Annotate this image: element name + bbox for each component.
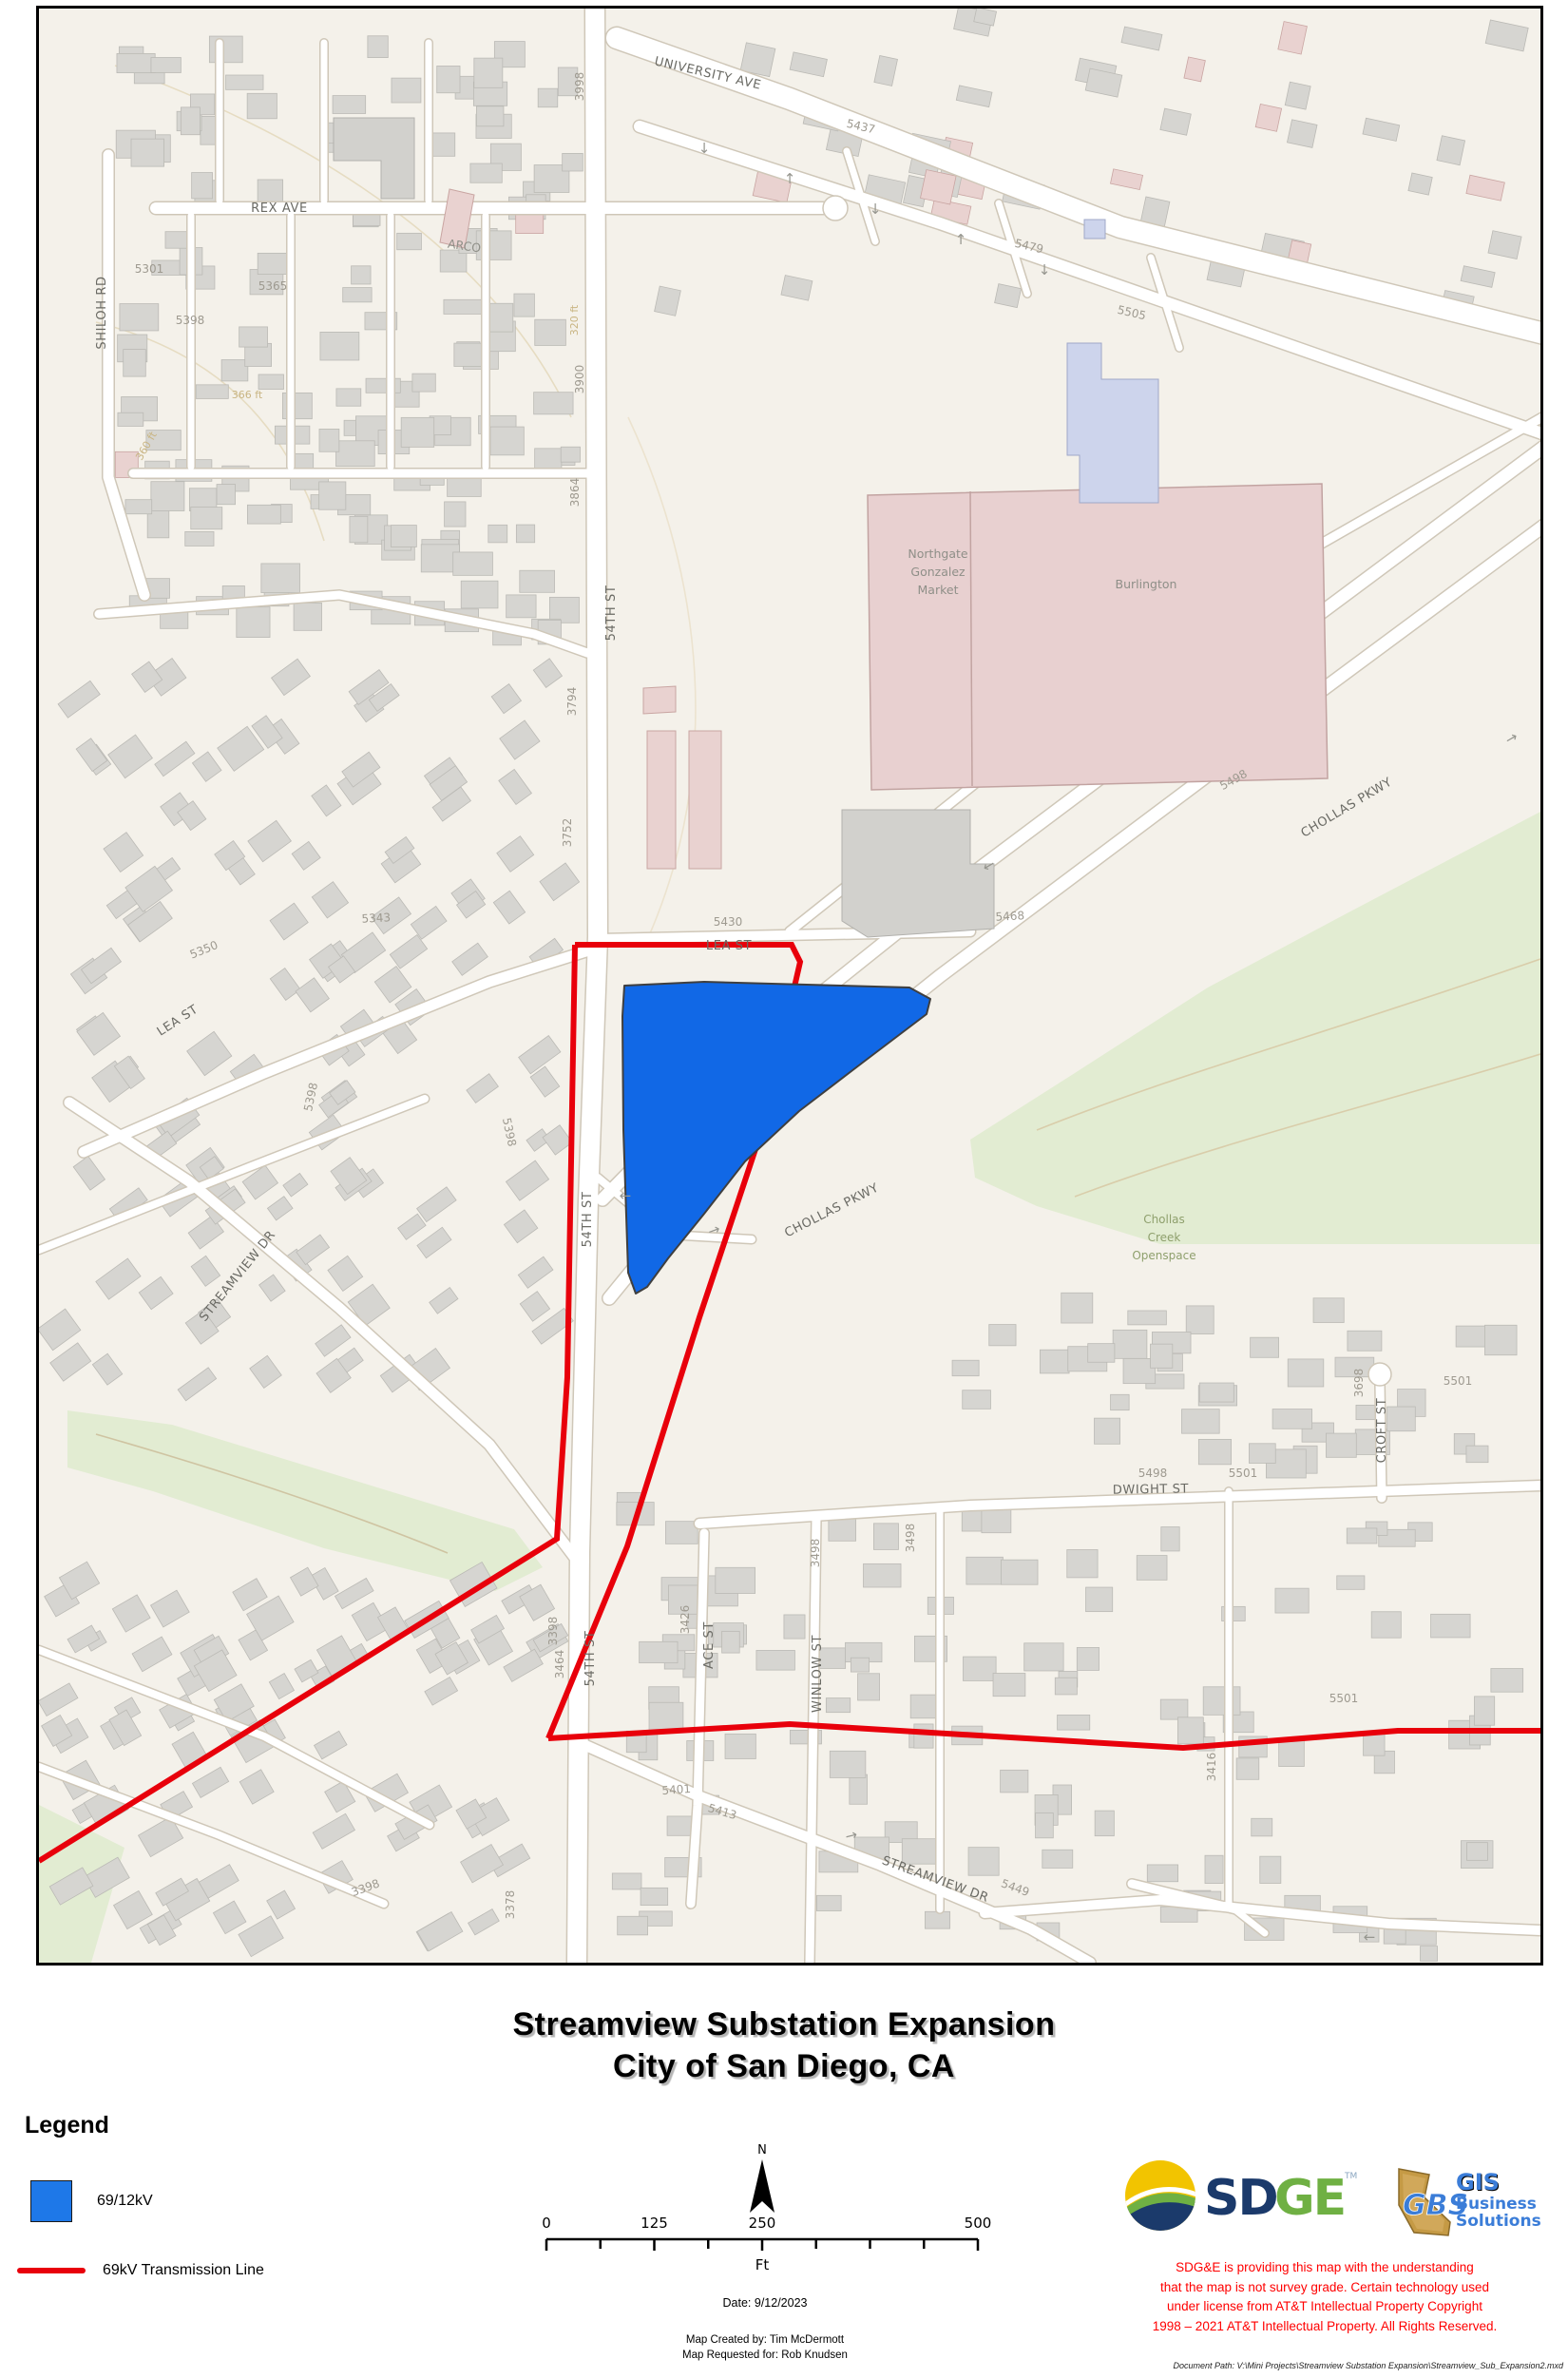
title-line-2: City of San Diego, CA xyxy=(0,2045,1568,2087)
house-footprint xyxy=(437,66,460,92)
map-label: 3698 xyxy=(1352,1369,1366,1398)
northgate-burlington-building xyxy=(868,484,1328,790)
house-footprint xyxy=(925,1911,949,1928)
house-footprint xyxy=(319,482,346,509)
disclaimer-text: SDG&E is providing this map with the und… xyxy=(1080,2258,1568,2336)
house-footprint xyxy=(1236,1758,1259,1779)
house-footprint xyxy=(1067,1549,1098,1577)
house-footprint xyxy=(1371,1612,1401,1638)
map-label: ↓ xyxy=(870,201,882,218)
house-footprint xyxy=(851,1658,869,1672)
house-footprint xyxy=(1420,1947,1437,1962)
house-footprint xyxy=(320,332,359,360)
house-footprint xyxy=(1147,1865,1177,1882)
map-label: 3900 xyxy=(573,365,586,394)
house-footprint xyxy=(1111,1394,1130,1410)
north-label: N xyxy=(757,2143,767,2157)
pink-building xyxy=(647,731,676,869)
house-footprint xyxy=(1251,1337,1279,1357)
house-footprint xyxy=(392,78,421,103)
disclaimer-line-4: 1998 – 2021 AT&T Intellectual Property. … xyxy=(1080,2317,1568,2337)
cul-de-sac xyxy=(823,196,848,221)
credit-created: Map Created by: Tim McDermott xyxy=(682,2332,848,2348)
house-footprint xyxy=(1161,1527,1179,1551)
commercial-building xyxy=(1255,104,1281,131)
map-label: 5430 xyxy=(714,915,743,929)
map-credits: Map Created by: Tim McDermott Map Reques… xyxy=(682,2332,848,2363)
house-footprint xyxy=(1040,1350,1069,1373)
gbs-line-business: Business xyxy=(1456,2195,1537,2214)
lavender-building xyxy=(1084,220,1105,239)
gbs-line-solutions: Solutions xyxy=(1456,2212,1541,2231)
substation-swatch xyxy=(30,2180,72,2222)
house-footprint xyxy=(401,417,434,447)
north-arrow: N xyxy=(741,2140,783,2220)
sdge-text-sd: SD xyxy=(1204,2170,1277,2227)
map-label: 3416 xyxy=(1205,1753,1218,1782)
map-label: Openspace xyxy=(1132,1249,1195,1262)
map-label: 5365 xyxy=(258,279,288,293)
map-label: 3998 xyxy=(573,72,586,102)
scale-tick-125: 125 xyxy=(641,2215,668,2232)
house-footprint xyxy=(1252,1818,1272,1836)
house-footprint xyxy=(963,1657,996,1680)
map-label: ACE ST xyxy=(702,1621,717,1669)
house-footprint xyxy=(476,106,504,126)
house-footprint xyxy=(1095,1811,1114,1836)
scale-bar: 0 125 250 500 Ft xyxy=(527,2215,1003,2275)
house-footprint xyxy=(966,1557,1004,1584)
map-label: Chollas xyxy=(1143,1213,1185,1226)
house-footprint xyxy=(1348,1331,1382,1351)
house-footprint xyxy=(1467,1843,1488,1861)
house-footprint xyxy=(520,570,555,592)
scale-bar-line xyxy=(546,2239,978,2251)
map-label: 5301 xyxy=(135,262,164,276)
house-footprint xyxy=(124,350,146,377)
map-label: Market xyxy=(918,583,959,597)
gbs-line-gis: GIS xyxy=(1456,2169,1500,2196)
legend-item-substation: 69/12kV xyxy=(30,2180,153,2222)
legend-label-substation: 69/12kV xyxy=(97,2193,153,2209)
house-footprint xyxy=(873,1524,898,1550)
house-footprint xyxy=(725,1734,755,1758)
house-footprint xyxy=(989,1325,1016,1346)
map-label: ← xyxy=(1364,1928,1376,1946)
house-footprint xyxy=(1260,1856,1281,1883)
house-footprint xyxy=(618,1916,648,1935)
pink-building xyxy=(689,731,721,869)
map-title: Streamview Substation Expansion City of … xyxy=(0,2004,1568,2087)
map-label: 3464 xyxy=(553,1650,566,1679)
house-footprint xyxy=(185,531,214,546)
house-footprint xyxy=(352,266,371,284)
house-footprint xyxy=(1001,1770,1028,1793)
house-footprint xyxy=(1186,1306,1214,1334)
house-footprint xyxy=(641,1888,668,1905)
map-label: 54TH ST xyxy=(604,585,619,642)
map-label: Gonzalez xyxy=(910,565,966,579)
house-footprint xyxy=(117,53,155,72)
house-footprint xyxy=(1249,1444,1275,1464)
scale-tick-250: 250 xyxy=(749,2215,776,2232)
house-footprint xyxy=(910,1695,936,1718)
house-footprint xyxy=(1288,1359,1324,1387)
map-label: Burlington xyxy=(1116,577,1177,591)
house-footprint xyxy=(1042,1850,1073,1868)
house-footprint xyxy=(1088,1344,1115,1363)
disclaimer-line-3: under license from AT&T Intellectual Pro… xyxy=(1080,2297,1568,2317)
map-label: REX AVE xyxy=(251,201,308,216)
house-footprint xyxy=(968,1848,999,1876)
house-footprint xyxy=(343,288,372,302)
house-footprint xyxy=(247,505,280,524)
house-footprint xyxy=(1177,1717,1203,1744)
house-footprint xyxy=(336,389,361,406)
cul-de-sac xyxy=(1368,1363,1391,1386)
transmission-swatch xyxy=(17,2268,86,2273)
house-footprint xyxy=(125,500,152,514)
house-footprint xyxy=(192,173,213,199)
commercial-building xyxy=(921,170,957,204)
house-footprint xyxy=(1337,1576,1365,1589)
map-label: 5501 xyxy=(1229,1467,1258,1480)
house-footprint xyxy=(1077,1647,1099,1670)
house-footprint xyxy=(858,1674,880,1700)
map-label: LEA ST xyxy=(706,939,752,953)
map-label: 3498 xyxy=(809,1539,822,1568)
map-label: 5343 xyxy=(361,911,391,926)
disclaimer-line-2: that the map is not survey grade. Certai… xyxy=(1080,2278,1568,2298)
house-footprint xyxy=(247,93,277,119)
map-label: 54TH ST xyxy=(583,1631,598,1687)
legend-item-transmission: 69kV Transmission Line xyxy=(17,2262,264,2279)
house-footprint xyxy=(1285,82,1310,109)
house-footprint xyxy=(1001,1560,1038,1584)
house-footprint xyxy=(716,1567,755,1593)
house-footprint xyxy=(534,393,573,414)
map-label: 3378 xyxy=(504,1890,517,1920)
house-footprint xyxy=(1408,173,1432,195)
house-footprint xyxy=(1055,1678,1077,1695)
house-footprint xyxy=(902,1839,940,1864)
house-footprint xyxy=(1036,1813,1054,1838)
house-footprint xyxy=(1061,1293,1093,1323)
house-footprint xyxy=(397,233,422,249)
map-label: 54TH ST xyxy=(581,1192,595,1248)
house-footprint xyxy=(474,58,503,87)
house-footprint xyxy=(181,107,200,135)
house-footprint xyxy=(151,57,181,72)
house-footprint xyxy=(490,427,524,455)
house-footprint xyxy=(1086,1587,1113,1612)
house-footprint xyxy=(1113,1330,1147,1358)
house-footprint xyxy=(445,502,466,527)
house-footprint xyxy=(1287,120,1317,148)
house-footprint xyxy=(756,1650,795,1670)
legend-heading: Legend xyxy=(25,2112,109,2139)
credit-requested: Map Requested for: Rob Knudsen xyxy=(682,2348,848,2363)
house-footprint xyxy=(1058,1715,1090,1730)
house-footprint xyxy=(391,526,416,547)
house-footprint xyxy=(507,595,536,618)
map-label: ↓ xyxy=(1039,261,1051,278)
house-footprint xyxy=(470,163,502,182)
map-label: 5501 xyxy=(1329,1692,1359,1705)
house-footprint xyxy=(538,88,558,107)
house-footprint xyxy=(239,327,268,347)
house-footprint xyxy=(120,304,159,331)
north-arrow-icon xyxy=(750,2159,774,2213)
map-label: CROFT ST xyxy=(1375,1398,1389,1464)
map-label: ↑ xyxy=(955,231,967,248)
map-label: ← xyxy=(620,1187,632,1204)
map-export-page: UNIVERSITY AVEREX AVESHILOH RD54TH ST54T… xyxy=(0,0,1568,2378)
house-footprint xyxy=(535,449,562,470)
house-footprint xyxy=(221,360,248,381)
map-canvas: UNIVERSITY AVEREX AVESHILOH RD54TH ST54T… xyxy=(36,6,1543,1966)
house-footprint xyxy=(1205,1855,1223,1883)
house-footprint xyxy=(995,284,1022,308)
house-footprint xyxy=(1387,1407,1416,1431)
map-label: 3398 xyxy=(546,1617,560,1646)
house-footprint xyxy=(118,412,143,426)
house-footprint xyxy=(665,1522,698,1544)
house-footprint xyxy=(488,525,507,543)
map-label: 5468 xyxy=(995,909,1024,924)
legend-label-transmission: 69kV Transmission Line xyxy=(103,2262,264,2278)
house-footprint xyxy=(1279,1739,1305,1766)
gbs-logo: GBS GIS Business Solutions xyxy=(1386,2165,1562,2239)
house-footprint xyxy=(350,516,368,542)
map-label: 5401 xyxy=(661,1782,691,1797)
document-path: Document Path: V:\Mini Projects\Streamvi… xyxy=(1173,2361,1563,2370)
house-footprint xyxy=(516,525,534,543)
house-footprint xyxy=(561,447,580,462)
map-label: Northgate xyxy=(908,547,967,561)
scale-tick-0: 0 xyxy=(542,2215,551,2232)
house-footprint xyxy=(1484,1325,1517,1354)
house-footprint xyxy=(1431,1614,1470,1638)
house-footprint xyxy=(1150,1344,1172,1368)
house-footprint xyxy=(209,36,242,63)
legend: Legend 69/12kV 69kV Transmission Line xyxy=(25,2112,109,2139)
scale-unit: Ft xyxy=(755,2256,770,2273)
map-date: Date: 9/12/2023 xyxy=(723,2296,808,2310)
house-footprint xyxy=(1199,1383,1233,1402)
title-line-1: Streamview Substation Expansion xyxy=(0,2004,1568,2045)
house-footprint xyxy=(816,1895,841,1910)
map-label: 3794 xyxy=(565,687,579,717)
house-footprint xyxy=(1198,1439,1231,1464)
house-footprint xyxy=(826,1698,850,1713)
house-footprint xyxy=(514,294,534,316)
house-footprint xyxy=(1160,1699,1188,1719)
house-footprint xyxy=(993,1674,1025,1697)
house-footprint xyxy=(1182,1410,1220,1433)
house-footprint xyxy=(649,1702,683,1732)
house-footprint xyxy=(461,581,498,608)
house-footprint xyxy=(1275,1588,1309,1613)
house-footprint xyxy=(151,482,184,511)
scale-tick-500: 500 xyxy=(965,2215,992,2232)
house-footprint xyxy=(563,153,583,171)
house-footprint xyxy=(412,374,435,392)
house-footprint xyxy=(131,139,164,166)
house-footprint xyxy=(1347,1528,1377,1544)
map-label: 5501 xyxy=(1444,1374,1473,1388)
pink-building xyxy=(643,686,676,714)
house-footprint xyxy=(237,607,270,638)
house-footprint xyxy=(722,1631,740,1653)
house-footprint xyxy=(963,1390,991,1410)
house-footprint xyxy=(784,1615,805,1639)
sdge-text-ge: GE xyxy=(1274,2170,1345,2227)
house-footprint xyxy=(864,1563,902,1587)
map-label: ↓ xyxy=(698,140,711,157)
house-footprint xyxy=(294,603,321,630)
map-label: 366 ft xyxy=(232,389,263,401)
house-footprint xyxy=(453,552,493,575)
house-footprint xyxy=(1272,1410,1311,1429)
map-label: Creek xyxy=(1148,1231,1181,1244)
house-footprint xyxy=(333,96,366,114)
house-footprint xyxy=(368,36,388,58)
house-footprint xyxy=(319,429,339,451)
map-label: 5398 xyxy=(176,314,205,327)
house-footprint xyxy=(196,385,228,399)
house-footprint xyxy=(226,75,263,89)
map-svg: UNIVERSITY AVEREX AVESHILOH RD54TH ST54T… xyxy=(39,9,1540,1963)
disclaimer-line-1: SDG&E is providing this map with the und… xyxy=(1080,2258,1568,2278)
house-footprint xyxy=(535,319,566,345)
sdge-globe-icon xyxy=(1124,2156,1205,2237)
house-footprint xyxy=(1474,1697,1494,1725)
sdge-tm: TM xyxy=(1344,2172,1357,2181)
map-label: 5498 xyxy=(1138,1467,1168,1480)
house-footprint xyxy=(830,1751,866,1777)
house-footprint xyxy=(914,1724,933,1748)
map-label: 3752 xyxy=(561,818,574,848)
map-label: 320 ft xyxy=(568,304,581,336)
house-footprint xyxy=(1128,1311,1167,1325)
house-footprint xyxy=(191,508,222,529)
map-label: 3864 xyxy=(568,478,582,508)
map-label: ↑ xyxy=(784,170,796,187)
house-footprint xyxy=(444,299,483,314)
house-footprint xyxy=(982,1509,1011,1533)
house-footprint xyxy=(1137,1556,1167,1581)
house-footprint xyxy=(1466,1446,1488,1463)
house-footprint xyxy=(850,1774,868,1804)
map-label: SHILOH RD xyxy=(95,276,109,349)
house-footprint xyxy=(1095,1418,1120,1444)
house-footprint xyxy=(1437,136,1465,165)
house-footprint xyxy=(1313,1298,1344,1323)
map-label: 3498 xyxy=(904,1524,917,1553)
house-footprint xyxy=(1024,1643,1063,1671)
house-footprint xyxy=(1203,1687,1240,1716)
house-footprint xyxy=(612,1873,641,1889)
house-footprint xyxy=(336,441,375,467)
map-label: WINLOW ST xyxy=(811,1635,825,1713)
house-footprint xyxy=(258,374,283,390)
house-footprint xyxy=(952,1360,979,1375)
sdge-logo: SD GE TM xyxy=(1124,2156,1362,2237)
house-footprint xyxy=(640,1641,678,1662)
map-label: DWIGHT ST xyxy=(1113,1482,1189,1497)
house-footprint xyxy=(1491,1669,1523,1693)
house-footprint xyxy=(217,485,236,505)
map-label: 3426 xyxy=(679,1605,692,1635)
house-footprint xyxy=(261,564,300,593)
house-footprint xyxy=(1326,1433,1356,1457)
house-footprint xyxy=(448,477,482,496)
